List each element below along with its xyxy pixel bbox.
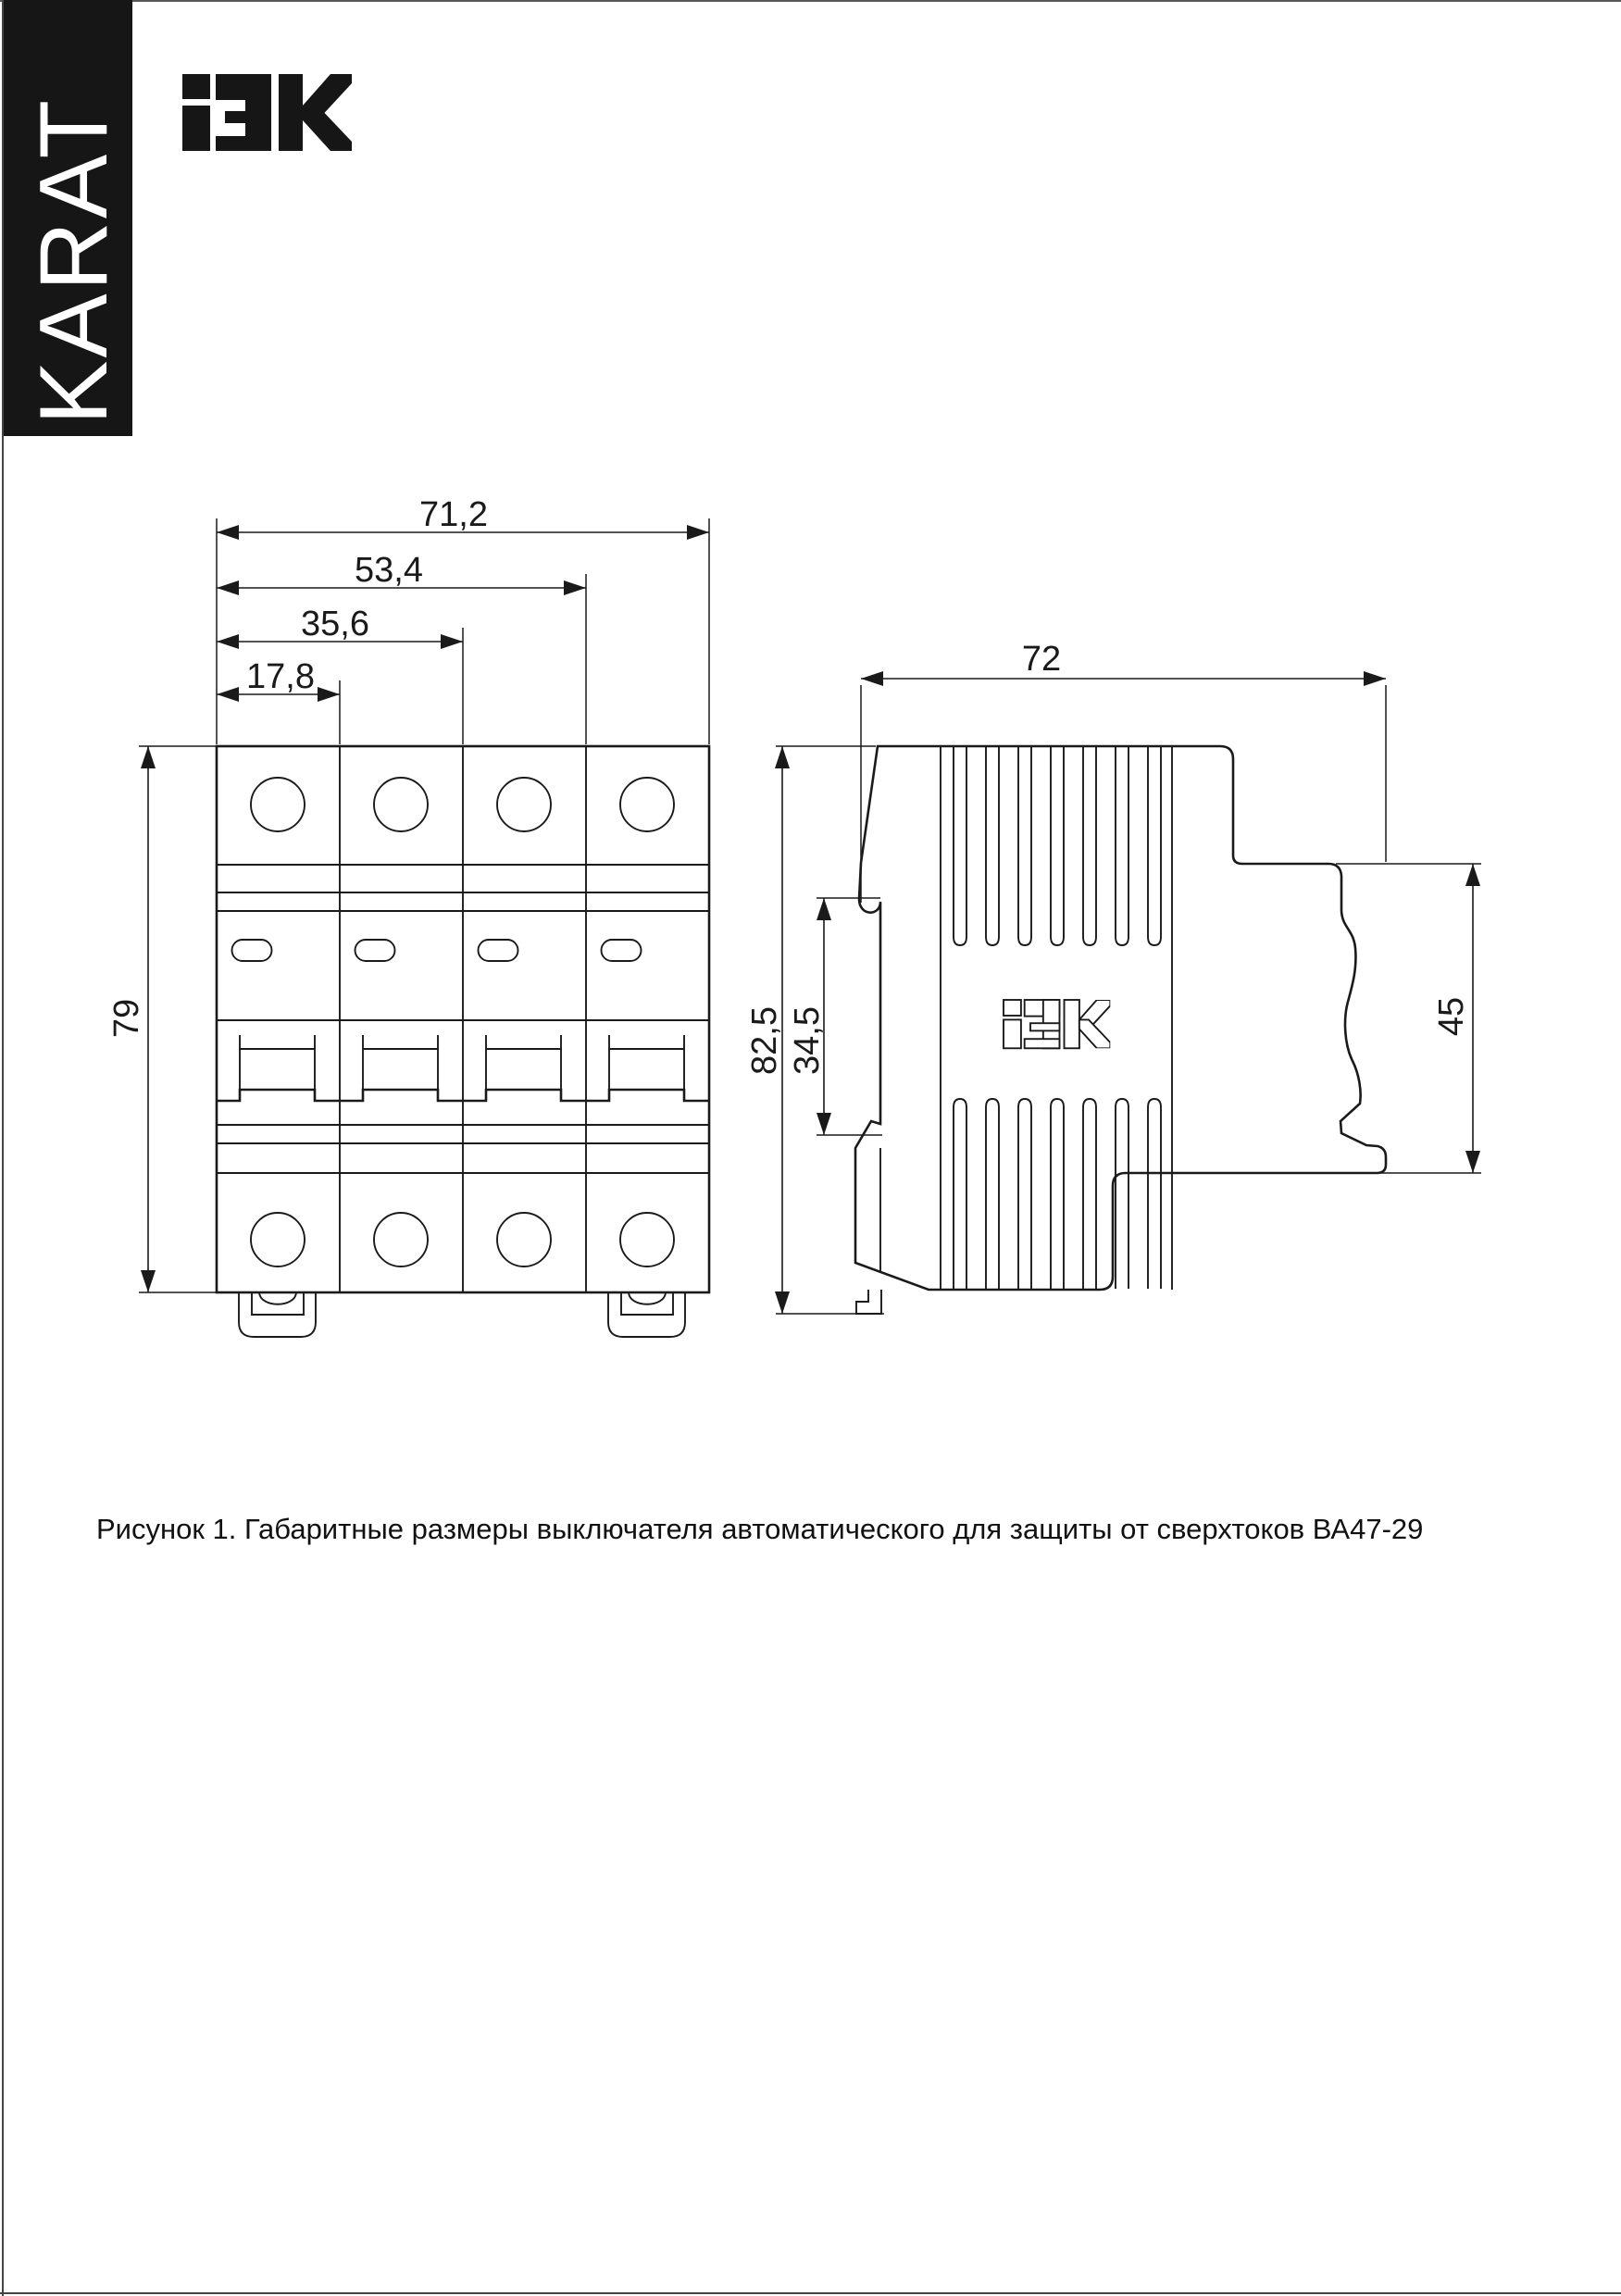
terminal-screw (620, 778, 674, 831)
dim-label-total-height: 82,5 (747, 1006, 782, 1075)
terminal-screw (497, 1213, 551, 1267)
terminal-screw (251, 1213, 305, 1267)
marking-window (602, 940, 642, 961)
dim-label-terminal-face: 45 (1434, 997, 1469, 1036)
technical-drawing (0, 0, 1621, 2296)
figure-caption: Рисунок 1. Габаритные размеры выключател… (96, 1513, 1423, 1546)
dim-label-total-width: 71,2 (419, 497, 488, 532)
dim-label-front-height: 79 (109, 999, 144, 1038)
iek-logo-embossed (1004, 1000, 1110, 1048)
din-clip (608, 1292, 685, 1337)
iek-logo (182, 74, 352, 151)
front-view (217, 746, 709, 1337)
din-clip (239, 1292, 316, 1337)
dim-label-two-modules: 35,6 (301, 606, 369, 642)
document-page: KARAT (0, 0, 1621, 2296)
terminal-screw (251, 778, 305, 831)
din-clip-foot (856, 1290, 881, 1314)
side-view (855, 746, 1386, 1314)
dim-label-depth: 72 (1022, 642, 1061, 677)
dim-label-one-module: 17,8 (246, 659, 315, 694)
terminal-screw (374, 778, 428, 831)
terminal-screw (374, 1213, 428, 1267)
vent-slots-upper (954, 747, 1161, 945)
front-view-dimensions (139, 518, 709, 1292)
terminal-screw (497, 778, 551, 831)
dim-label-din-slot: 34,5 (790, 1006, 825, 1075)
marking-window (232, 940, 272, 961)
dim-label-three-modules: 53,4 (355, 553, 423, 588)
terminal-screw (620, 1213, 674, 1267)
vent-slots-lower (954, 1099, 1161, 1289)
marking-window (355, 940, 395, 961)
marking-window (479, 940, 518, 961)
